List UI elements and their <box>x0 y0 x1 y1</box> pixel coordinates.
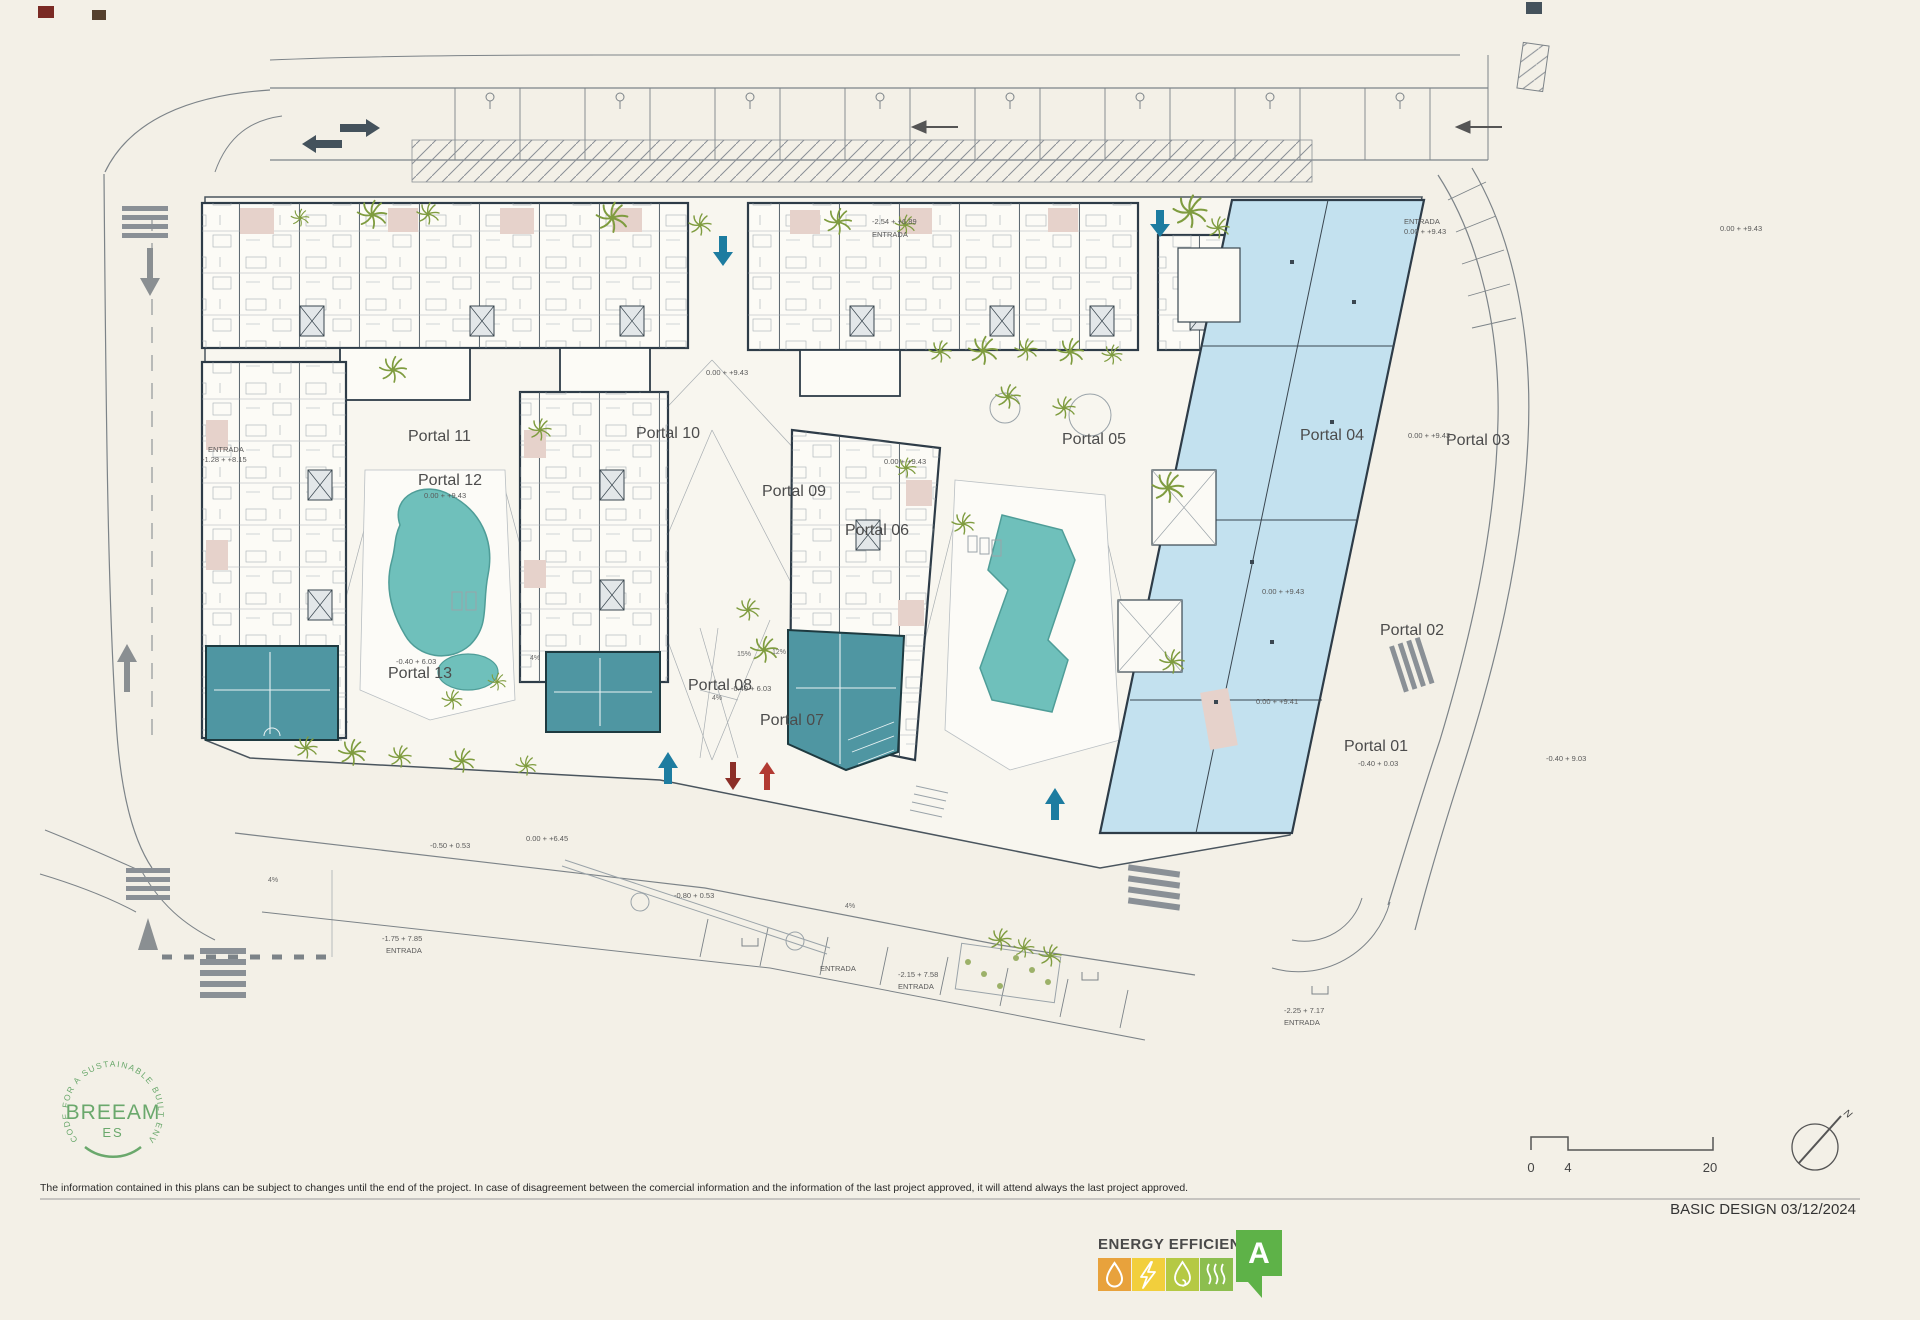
amenity-box-middle <box>546 652 660 732</box>
scale-tick: 4 <box>1564 1160 1571 1175</box>
left-pool <box>389 489 490 656</box>
site-plan-sheet: Portal 01 Portal 02 Portal 03 Portal 04 … <box>0 0 1920 1320</box>
elevation-label: 0.00 + +9.41 <box>1256 697 1298 706</box>
portal-label: Portal 09 <box>762 483 826 500</box>
entrance-label: -1.75 + 7.85 <box>382 934 422 943</box>
elevation-label: 0.00 + +9.43 <box>424 491 466 500</box>
slope-label: 15% <box>737 651 751 658</box>
portal-label: Portal 04 <box>1300 427 1364 444</box>
entrance-label: ENTRADA <box>820 964 856 973</box>
portal-label: Portal 01 <box>1344 738 1408 755</box>
entrance-label: ENTRADA <box>386 946 422 955</box>
entrance-label: -2.15 + 7.58 <box>898 970 938 979</box>
entrance-label: -2.54 + +6.89 <box>872 217 917 226</box>
breeam-region: ES <box>102 1125 123 1140</box>
elevation-label: 0.00 + +9.43 <box>1408 431 1450 440</box>
elevation-label: -0.80 + 0.53 <box>674 891 714 900</box>
entrance-label: ENTRADA <box>1284 1018 1320 1027</box>
energy-water-icon <box>1098 1258 1131 1291</box>
slope-label: 4% <box>712 695 722 702</box>
energy-rating-letter: A <box>1248 1237 1270 1270</box>
portal-label: Portal 06 <box>845 522 909 539</box>
elevation-label: 0.00 + +6.45 <box>526 834 568 843</box>
entrance-label: ENTRADA <box>898 982 934 991</box>
entrance-label: ENTRADA <box>1404 217 1440 226</box>
slope-label: 12% <box>772 649 786 656</box>
hatched-entry-strip <box>412 140 1312 182</box>
entrance-label: -2.25 + 7.17 <box>1284 1006 1324 1015</box>
entrance-label: ENTRADA <box>208 445 244 454</box>
portal-label: Portal 10 <box>636 425 700 442</box>
elevation-label: -0.50 + 0.53 <box>430 841 470 850</box>
elevation-label: -0.40 + 6.03 <box>396 657 436 666</box>
elevation-label: 0.00 + +9.43 <box>1262 587 1304 596</box>
slope-label: 4% <box>845 903 855 910</box>
entrance-label: ENTRADA <box>872 230 908 239</box>
elevation-label: -0.40 + 0.03 <box>1358 759 1398 768</box>
portal-label: Portal 13 <box>388 665 452 682</box>
entrance-label: 0.00 + +9.43 <box>1404 227 1446 236</box>
elevation-label: 0.00 + +9.43 <box>1720 224 1762 233</box>
energy-heat-icon <box>1200 1258 1233 1291</box>
portal-label: Portal 03 <box>1446 432 1510 449</box>
elevation-label: 0.00 + +9.43 <box>706 368 748 377</box>
energy-power-icon <box>1132 1258 1165 1291</box>
basic-design-stamp: BASIC DESIGN 03/12/2024 <box>1670 1201 1856 1218</box>
disclaimer-text: The information contained in this plans … <box>40 1182 1188 1194</box>
amenity-box-left <box>206 646 338 740</box>
portal-label: Portal 07 <box>760 712 824 729</box>
scale-tick: 20 <box>1703 1160 1717 1175</box>
elevation-label: -0.40 + 9.03 <box>1546 754 1586 763</box>
entrance-label: -1.28 + +8.15 <box>202 455 247 464</box>
portal-label: Portal 12 <box>418 472 482 489</box>
portal-label: Portal 02 <box>1380 622 1444 639</box>
breeam-name: BREEAM <box>66 1101 161 1124</box>
elevation-label: 0.00 + +9.43 <box>884 457 926 466</box>
elevation-label: -0.40 + 6.03 <box>731 684 771 693</box>
site-plan-drawing: Portal 01 Portal 02 Portal 03 Portal 04 … <box>0 0 1920 1320</box>
energy-efficiency-badge: ENERGY EFFICIENCY A <box>1098 1230 1282 1298</box>
energy-flame-icon <box>1166 1258 1199 1291</box>
amenity-box-right <box>788 630 904 770</box>
scale-tick: 0 <box>1527 1160 1534 1175</box>
slope-label: 4% <box>268 877 278 884</box>
portal-label: Portal 11 <box>408 428 471 445</box>
portal-label: Portal 05 <box>1062 431 1126 448</box>
slope-label: 4% <box>530 655 540 662</box>
